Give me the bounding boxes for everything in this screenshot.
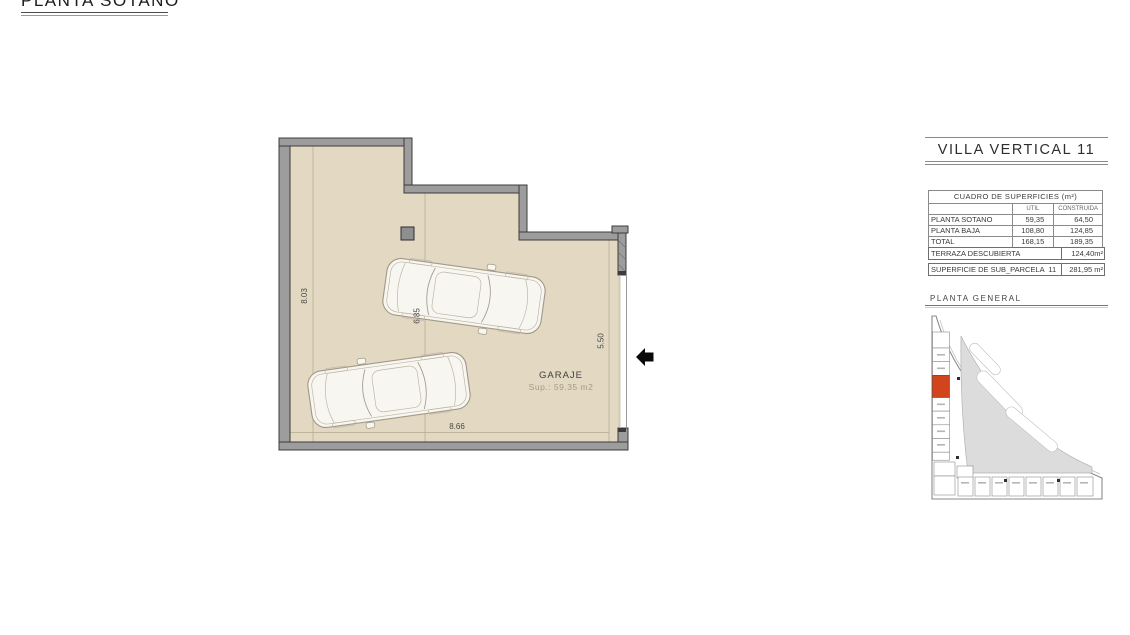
table-row: TOTAL 168,15 189,35 xyxy=(929,237,1103,248)
row-label: PLANTA BAJA xyxy=(929,226,1013,237)
divider xyxy=(925,164,1108,165)
dim-height-mid: 6.85 xyxy=(413,308,422,324)
page-title: PLANTA SOTANO xyxy=(21,0,180,11)
surfaces-col-blank xyxy=(929,204,1013,215)
room-area-label: Sup.: 59.35 m2 xyxy=(529,382,594,392)
divider xyxy=(925,161,1108,162)
column xyxy=(401,227,414,240)
villa-title-block: VILLA VERTICAL 11 xyxy=(925,137,1108,165)
title-underline-2 xyxy=(21,15,168,16)
row-construida: 124,85 xyxy=(1054,226,1103,237)
site-title-underline-2 xyxy=(925,307,1108,308)
row-util: 59,35 xyxy=(1012,215,1054,226)
row-util: 108,80 xyxy=(1012,226,1054,237)
surfaces-table-caption: CUADRO DE SUPERFICIES (m²) xyxy=(929,191,1103,204)
floor-plan: 8.03 6.85 5.50 8.66 GARAJE Sup.: 59.35 m… xyxy=(268,126,668,462)
surfaces-col-util: UTIL xyxy=(1012,204,1054,215)
row-util: 168,15 xyxy=(1012,237,1054,248)
table-row: PLANTA SOTANO 59,35 64,50 xyxy=(929,215,1103,226)
villa-title: VILLA VERTICAL 11 xyxy=(925,138,1108,161)
parcela-row: SUPERFICIE DE SUB_PARCELA 11 281,95 m² xyxy=(928,263,1105,276)
parcela-value: 281,95 m² xyxy=(1061,264,1104,275)
wall-endcap-bottom xyxy=(618,428,626,432)
dim-height-left: 8.03 xyxy=(300,288,309,304)
terraza-value: 124,40m² xyxy=(1061,248,1104,259)
row-construida: 64,50 xyxy=(1054,215,1103,226)
dim-width-bottom: 8.66 xyxy=(449,422,465,431)
site-plan xyxy=(925,313,1110,505)
row-label: TOTAL xyxy=(929,237,1013,248)
terraza-row: TERRAZA DESCUBIERTA 124,40m² xyxy=(928,247,1105,260)
garage-door xyxy=(620,275,627,428)
room-label: GARAJE xyxy=(539,370,583,381)
site-title-underline xyxy=(925,305,1108,306)
site-plan-title: PLANTA GENERAL xyxy=(930,294,1022,303)
parcela-label: SUPERFICIE DE SUB_PARCELA 11 xyxy=(929,264,1061,275)
entry-arrow-icon xyxy=(636,348,654,366)
wall-endcap-top xyxy=(618,271,626,275)
row-construida: 189,35 xyxy=(1054,237,1103,248)
surfaces-col-construida: CONSTRUIDA xyxy=(1054,204,1103,215)
row-label: PLANTA SOTANO xyxy=(929,215,1013,226)
drawing-sheet: PLANTA SOTANO xyxy=(0,0,1130,635)
surfaces-table: CUADRO DE SUPERFICIES (m²) UTIL CONSTRUI… xyxy=(928,190,1103,248)
terraza-label: TERRAZA DESCUBIERTA xyxy=(929,248,1061,259)
dim-height-right: 5.50 xyxy=(597,333,606,349)
highlighted-villa-11 xyxy=(933,375,950,397)
table-row: PLANTA BAJA 108,80 124,85 xyxy=(929,226,1103,237)
title-underline xyxy=(21,12,168,13)
